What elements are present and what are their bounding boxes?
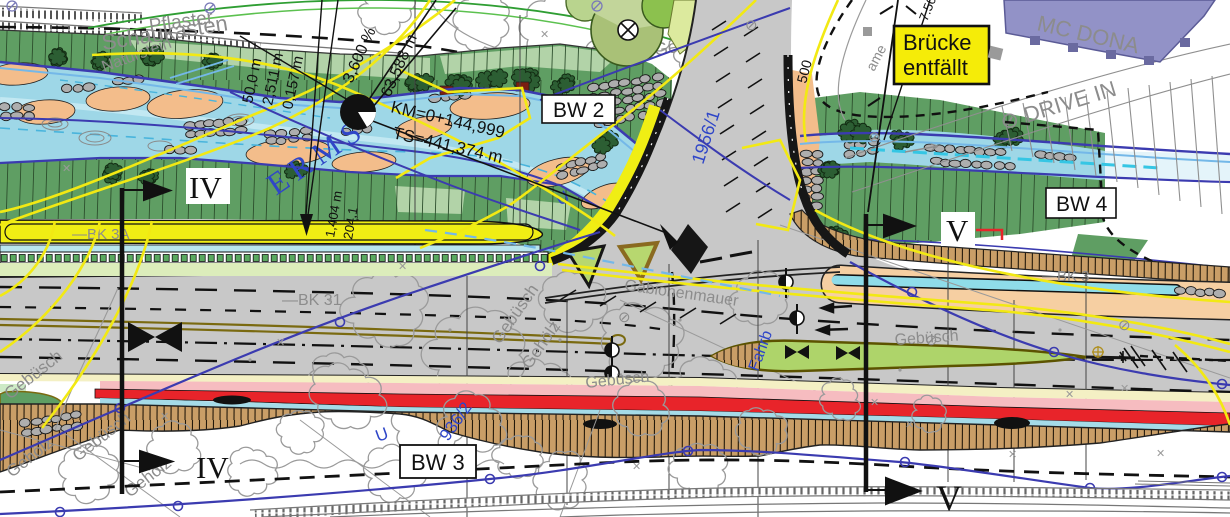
svg-text:✕: ✕ [1120,383,1129,395]
svg-text:—BK 31: —BK 31 [282,292,342,309]
svg-text:✕: ✕ [540,29,549,41]
svg-text:V: V [936,478,962,517]
svg-text:✕: ✕ [1065,389,1074,401]
svg-text:✕: ✕ [1008,449,1017,461]
svg-text:⊘: ⊘ [1118,317,1131,334]
svg-text:✕: ✕ [276,337,285,349]
svg-text:⊘: ⊘ [618,309,631,326]
svg-text:Brücke: Brücke [903,30,971,55]
svg-text:⊘: ⊘ [925,332,938,349]
svg-text:✕: ✕ [905,419,914,431]
svg-text:✕: ✕ [62,163,71,175]
svg-text:✕: ✕ [1156,448,1165,460]
svg-text:✕: ✕ [398,261,407,273]
svg-text:⊘: ⊘ [745,17,758,34]
svg-text:BW 3: BW 3 [411,450,465,475]
svg-text:⊘: ⊘ [868,129,881,146]
svg-text:V: V [946,213,969,248]
svg-text:IV: IV [189,170,222,205]
svg-text:entfällt: entfällt [903,55,968,80]
svg-text:BW 2: BW 2 [553,99,604,122]
svg-text:✕: ✕ [870,397,879,409]
svg-text:✕: ✕ [160,411,169,423]
svg-text:✕: ✕ [632,461,641,473]
svg-text:BW 4: BW 4 [1056,193,1108,216]
svg-text:IV: IV [196,450,229,485]
